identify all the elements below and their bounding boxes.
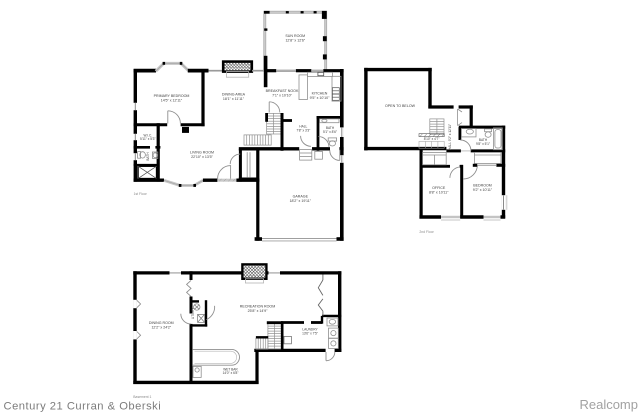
- svg-text:LIVING ROOM: LIVING ROOM: [190, 150, 214, 154]
- svg-text:Basement 1: Basement 1: [133, 395, 151, 399]
- svg-text:9'8" x 5'1": 9'8" x 5'1": [476, 142, 490, 146]
- svg-text:5'11" x 5'3": 5'11" x 5'3": [140, 137, 155, 141]
- svg-text:14'5" x 12'11": 14'5" x 12'11": [161, 99, 183, 103]
- svg-text:9'5" x 10'10": 9'5" x 10'10": [310, 96, 330, 100]
- svg-text:2nd Floor: 2nd Floor: [419, 230, 434, 234]
- svg-text:7'1" x 10'10": 7'1" x 10'10": [272, 93, 292, 97]
- svg-text:Century 21 Curran & Oberski: Century 21 Curran & Oberski: [4, 401, 162, 413]
- svg-text:25'8" x 14'9": 25'8" x 14'9": [248, 309, 268, 313]
- svg-text:13'6" x 7'5": 13'6" x 7'5": [302, 331, 318, 335]
- svg-text:KITCHEN: KITCHEN: [312, 92, 328, 96]
- svg-text:RECREATION ROOM: RECREATION ROOM: [240, 305, 275, 309]
- svg-text:HALL 9'2" x 12'11": HALL 9'2" x 12'11": [448, 124, 452, 150]
- svg-text:OFFICE: OFFICE: [432, 186, 446, 190]
- svg-text:5'1" x 8'6": 5'1" x 8'6": [323, 130, 337, 134]
- svg-text:12'2" x 24'2": 12'2" x 24'2": [151, 325, 171, 329]
- svg-text:9'2" x 10'11": 9'2" x 10'11": [473, 188, 493, 192]
- svg-text:12'8" x 12'6": 12'8" x 12'6": [285, 39, 305, 43]
- svg-text:14'0" x 6'8": 14'0" x 6'8": [223, 371, 239, 375]
- svg-text:SUN ROOM: SUN ROOM: [285, 34, 305, 38]
- svg-text:DINING AREA: DINING AREA: [222, 93, 246, 97]
- svg-text:GARAGE: GARAGE: [293, 194, 309, 198]
- svg-text:Realcomp: Realcomp: [579, 397, 638, 412]
- svg-text:BREAKFAST NOOK: BREAKFAST NOOK: [266, 89, 299, 93]
- svg-text:PRIMARY BEDROOM: PRIMARY BEDROOM: [154, 94, 190, 98]
- svg-text:OPEN TO BELOW: OPEN TO BELOW: [385, 104, 416, 108]
- svg-text:22'10" x 13'5": 22'10" x 13'5": [191, 155, 213, 159]
- svg-text:8'8" x 10'11": 8'8" x 10'11": [429, 191, 449, 195]
- svg-text:DINING ROOM: DINING ROOM: [149, 321, 174, 325]
- svg-text:BEDROOM: BEDROOM: [473, 183, 492, 187]
- svg-text:18'1" x 11'11": 18'1" x 11'11": [223, 97, 245, 101]
- svg-text:UTILITY: UTILITY: [191, 306, 195, 319]
- svg-text:18'2" x 19'11": 18'2" x 19'11": [290, 199, 312, 203]
- svg-text:BATH: BATH: [146, 152, 150, 161]
- svg-text:1st Floor: 1st Floor: [134, 192, 148, 196]
- svg-text:7'8" x 3'3": 7'8" x 3'3": [296, 129, 310, 133]
- svg-text:8'10" x 4'7": 8'10" x 4'7": [424, 137, 440, 141]
